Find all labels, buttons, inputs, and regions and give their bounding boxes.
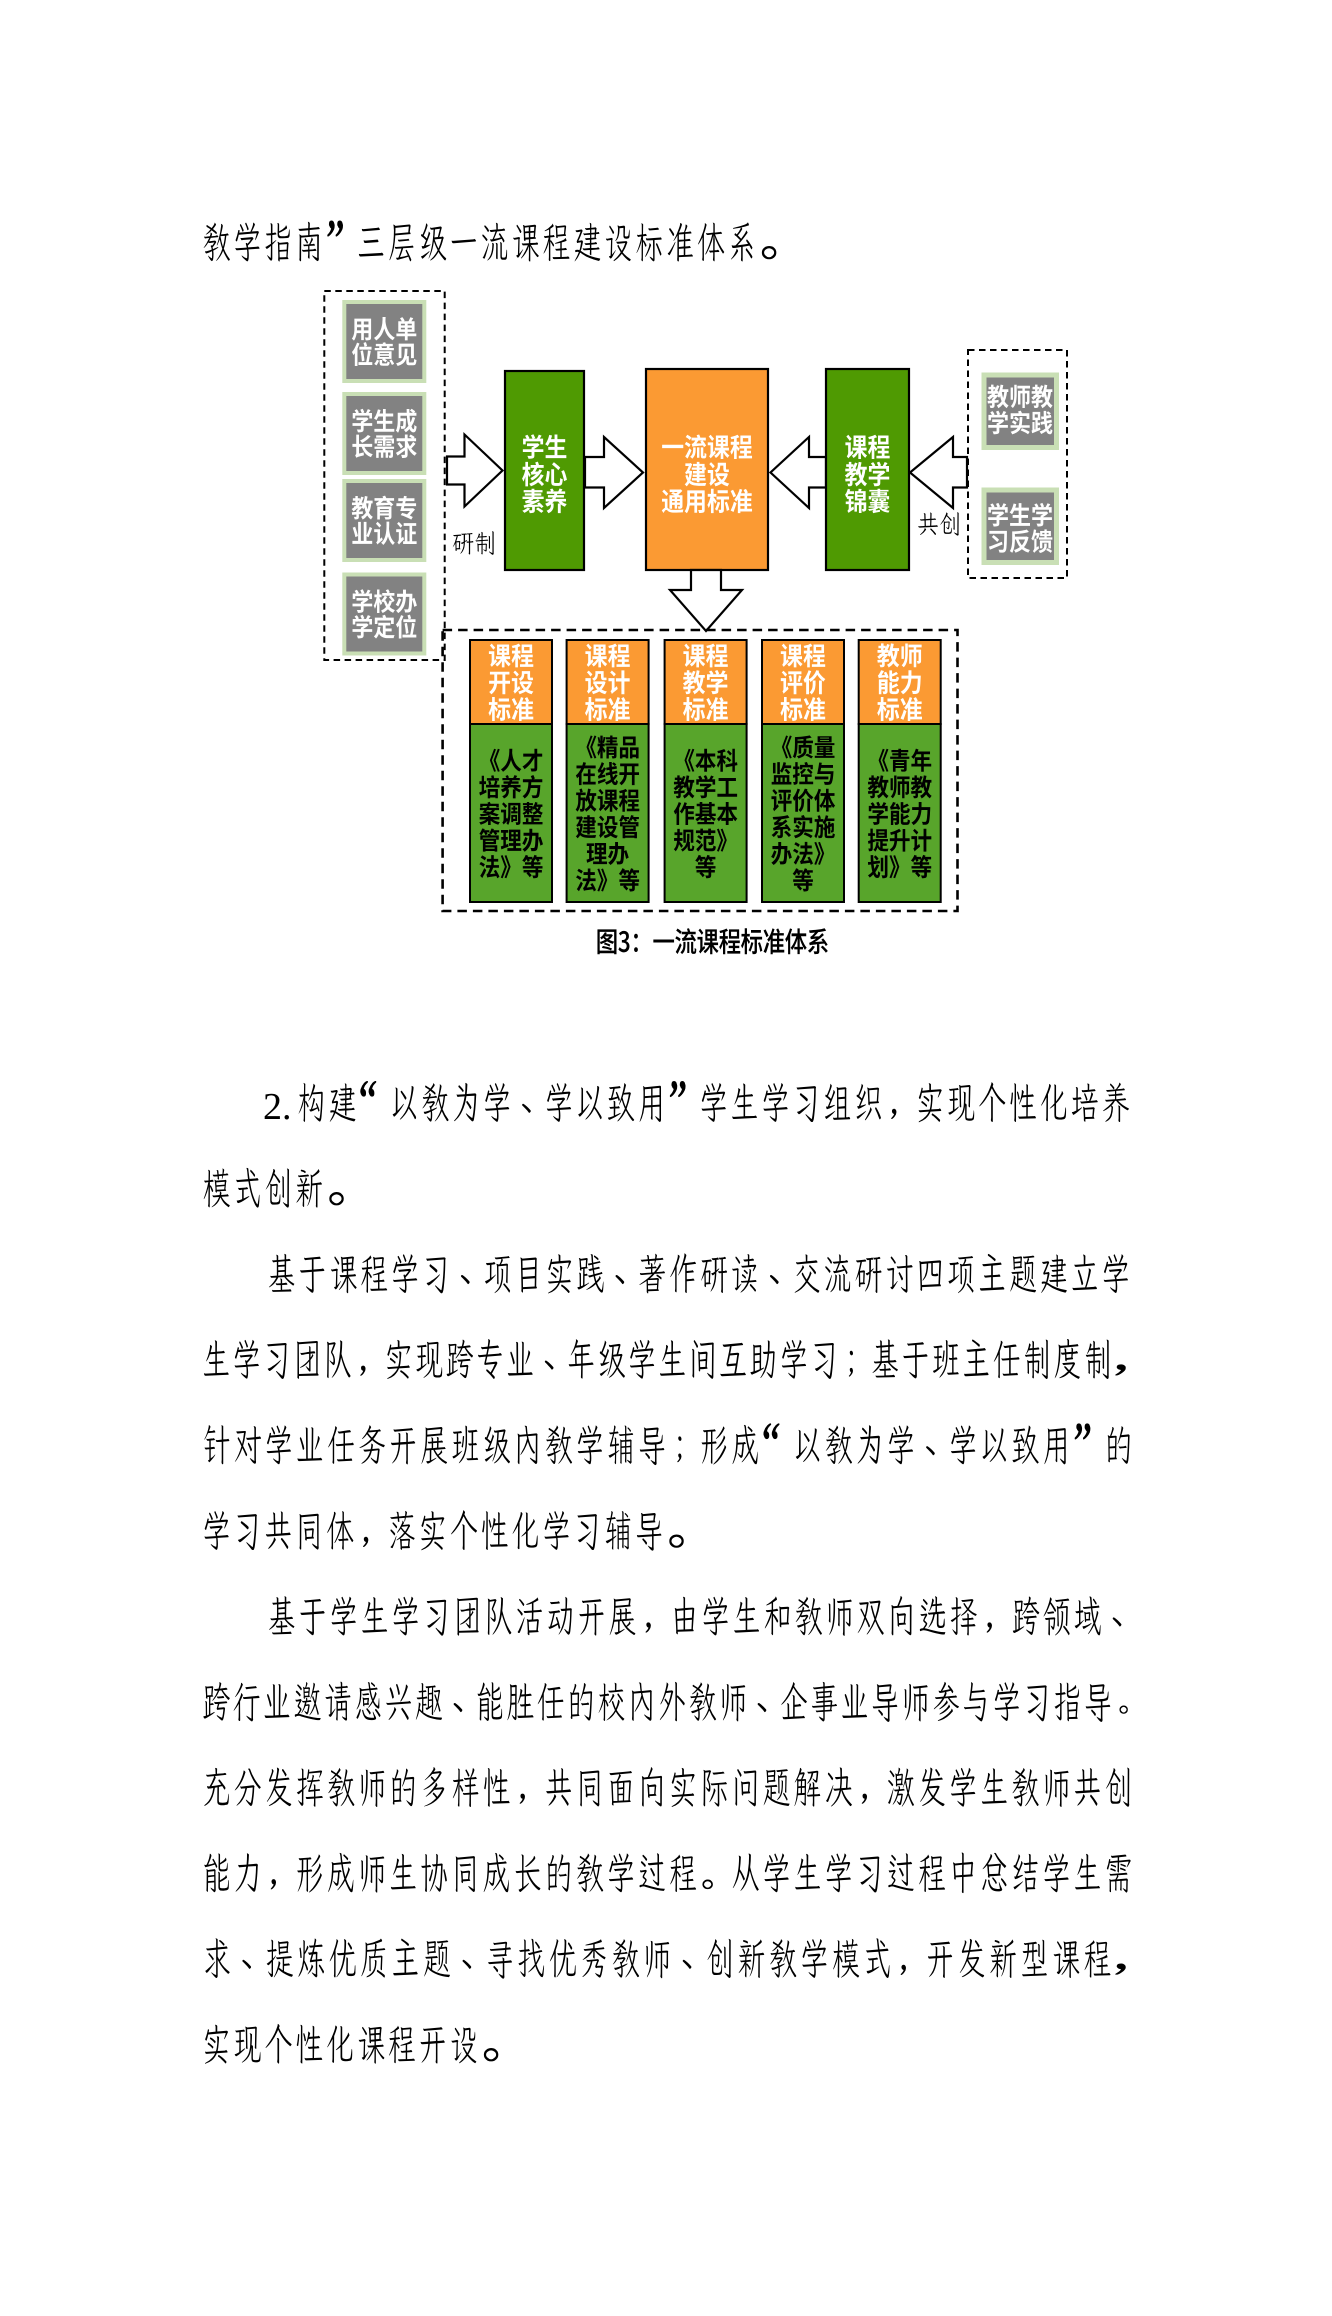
svg-text:2.: 2.: [263, 1086, 292, 1128]
